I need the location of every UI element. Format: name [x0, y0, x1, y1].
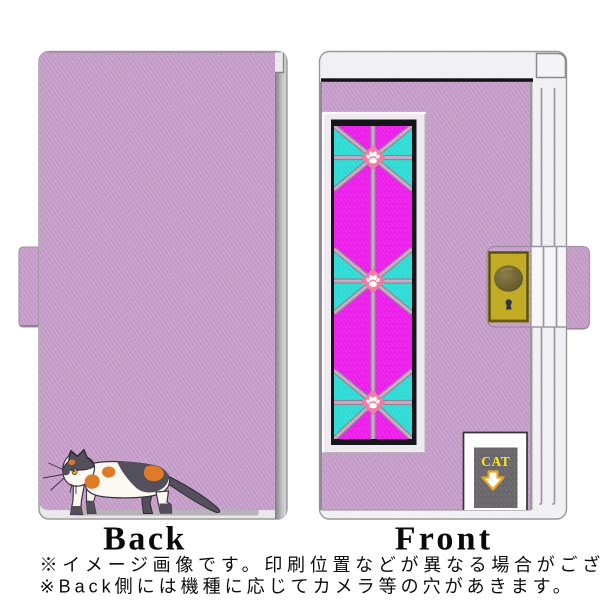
svg-text:Back: Back — [103, 521, 187, 558]
svg-text:Front: Front — [395, 521, 493, 558]
svg-text:※Back側には機種に応じてカメラ等の穴があきます。: ※Back側には機種に応じてカメラ等の穴があきます。 — [40, 577, 575, 597]
svg-text:CAT: CAT — [481, 454, 510, 469]
svg-text:※イメージ画像です。印刷位置などが異なる場合がございます。: ※イメージ画像です。印刷位置などが異なる場合がございます。 — [40, 554, 600, 575]
